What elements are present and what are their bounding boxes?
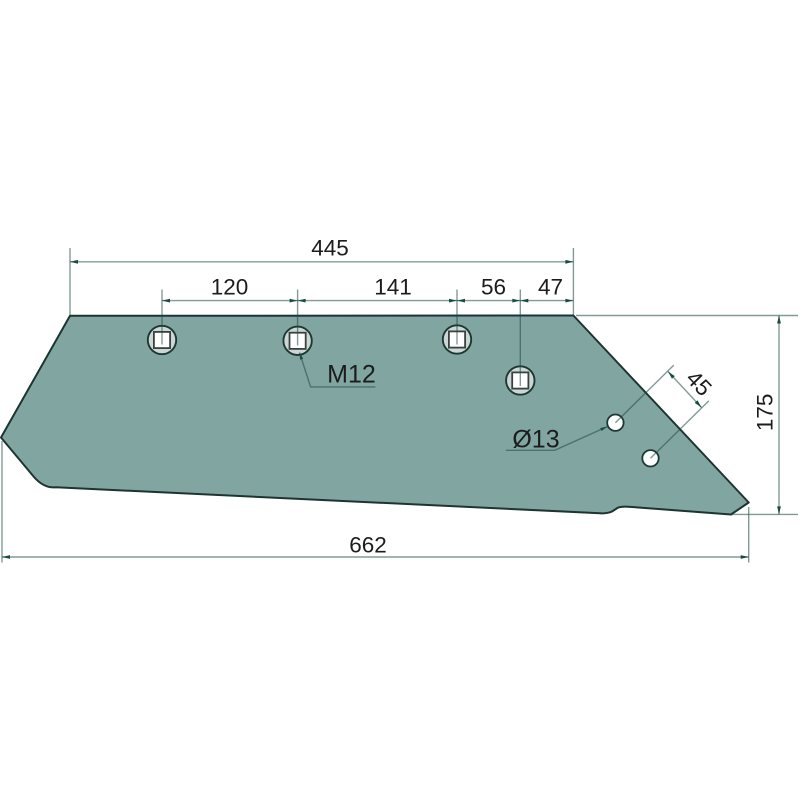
svg-text:Ø13: Ø13	[512, 426, 559, 454]
svg-text:662: 662	[349, 533, 387, 558]
svg-text:141: 141	[374, 274, 412, 299]
svg-text:175: 175	[753, 394, 778, 432]
svg-text:45: 45	[681, 366, 716, 401]
svg-text:47: 47	[538, 274, 563, 299]
svg-text:120: 120	[211, 274, 249, 299]
svg-text:445: 445	[311, 236, 349, 261]
svg-text:56: 56	[481, 274, 506, 299]
svg-text:M12: M12	[327, 361, 376, 389]
